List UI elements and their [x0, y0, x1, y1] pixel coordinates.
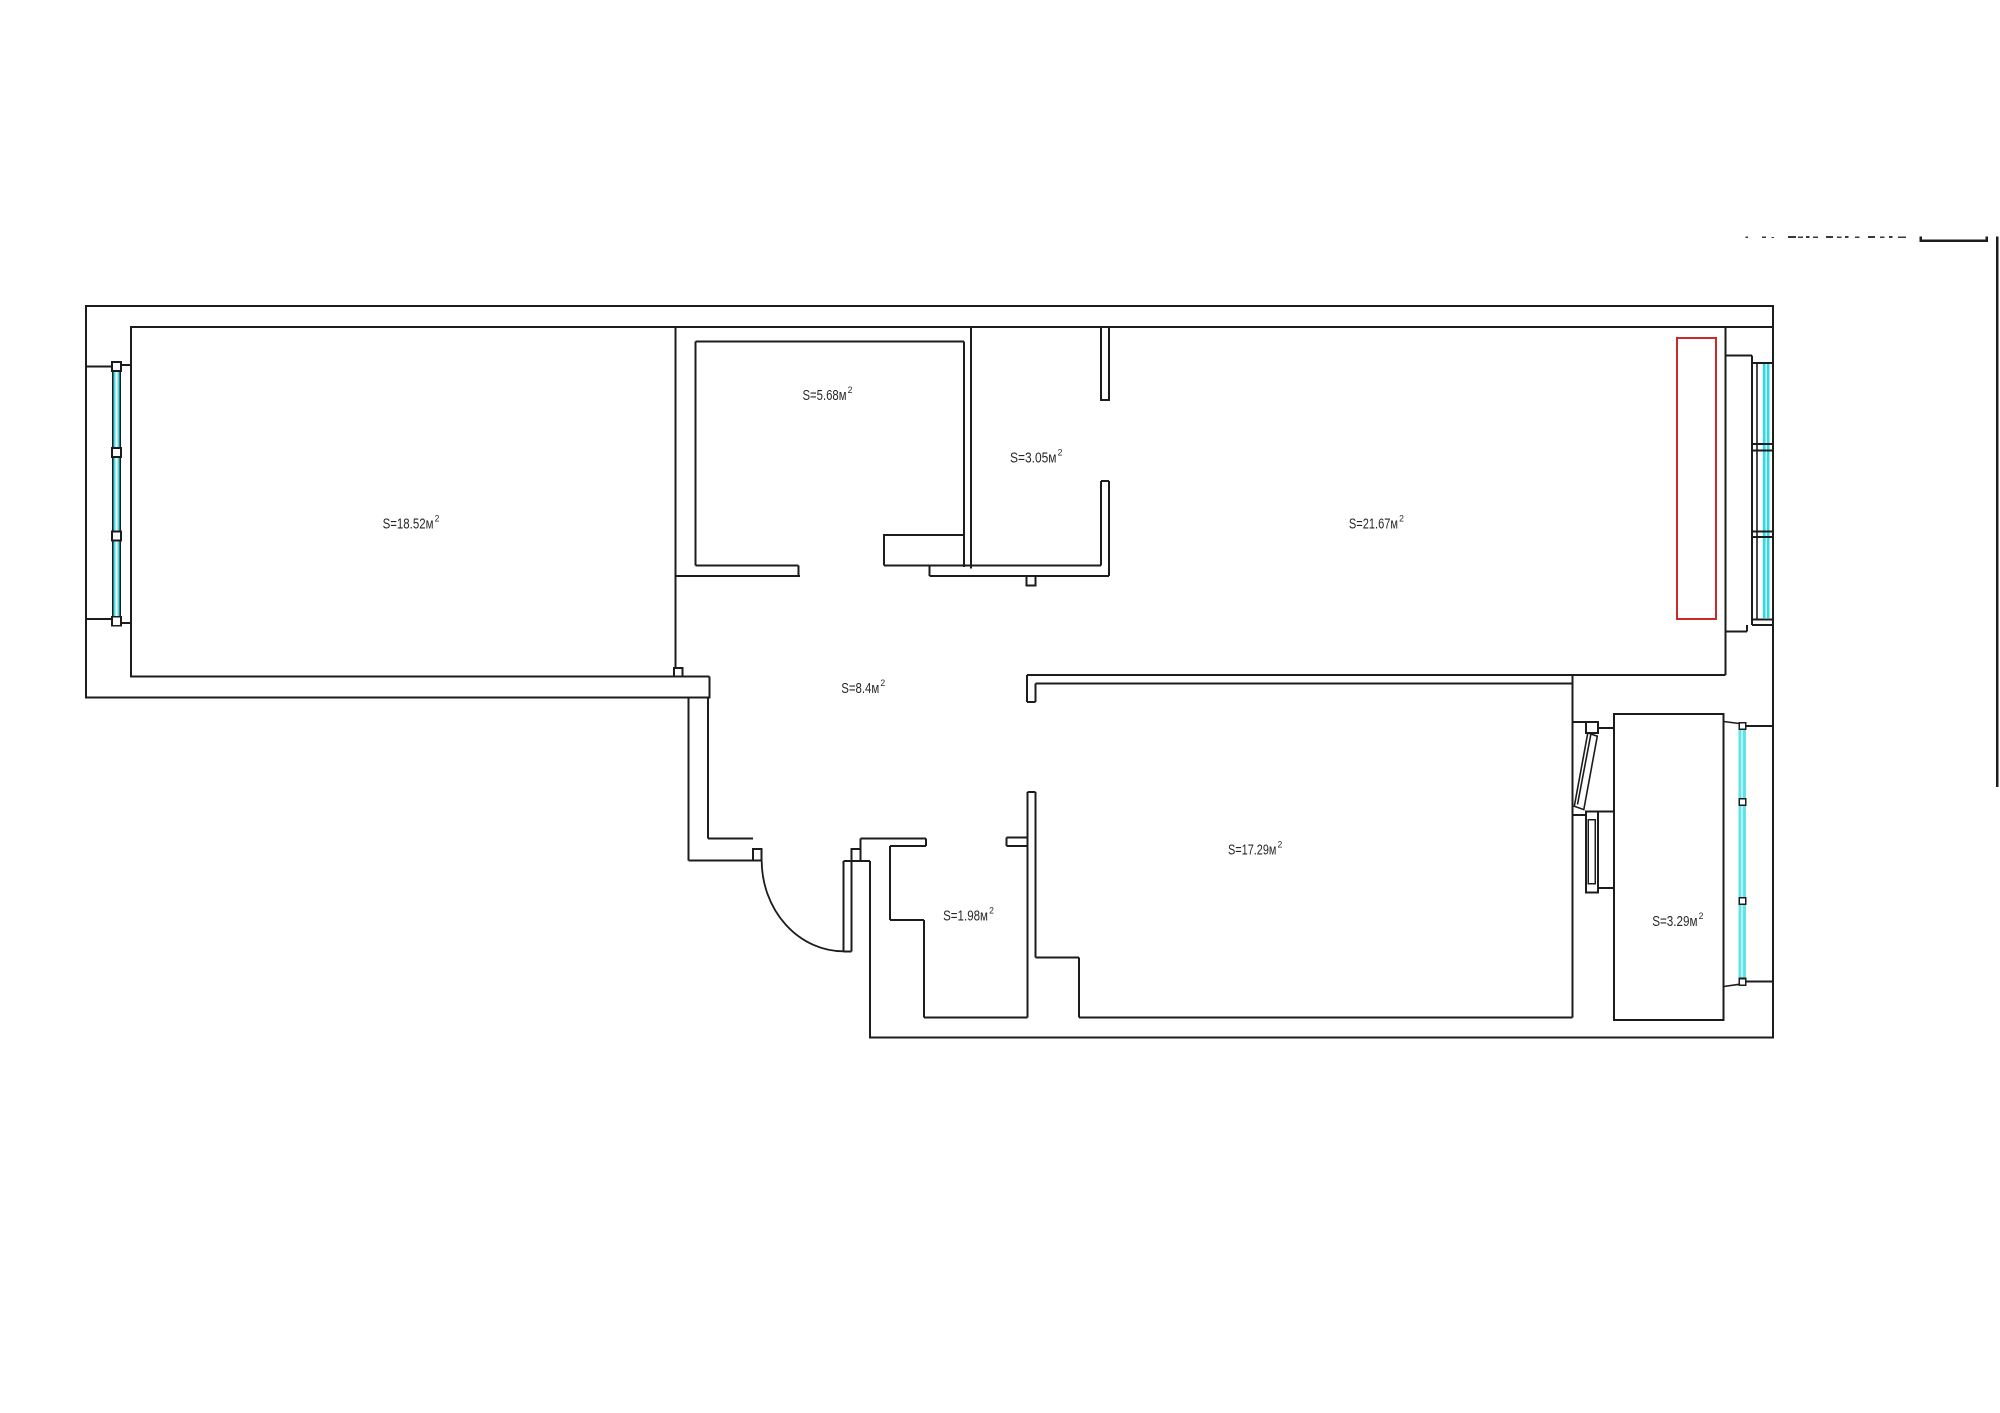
svg-text:S=3.05м: S=3.05м	[1010, 450, 1057, 467]
svg-text:2: 2	[989, 906, 994, 917]
svg-text:2: 2	[1399, 513, 1404, 524]
svg-text:2: 2	[1278, 839, 1283, 850]
svg-text:2: 2	[880, 678, 885, 689]
svg-text:2: 2	[1699, 911, 1704, 922]
svg-text:2: 2	[848, 385, 853, 396]
svg-text:2: 2	[1058, 448, 1063, 459]
svg-text:2: 2	[435, 513, 440, 524]
svg-text:S=3.29м: S=3.29м	[1652, 913, 1697, 930]
svg-text:S=18.52м: S=18.52м	[383, 515, 434, 532]
svg-text:S=17.29м: S=17.29м	[1228, 841, 1276, 858]
svg-text:S=1.98м: S=1.98м	[943, 908, 988, 925]
svg-text:S=5.68м: S=5.68м	[803, 387, 847, 404]
svg-text:S=21.67м: S=21.67м	[1349, 515, 1398, 532]
svg-text:S=8.4м: S=8.4м	[841, 680, 879, 697]
